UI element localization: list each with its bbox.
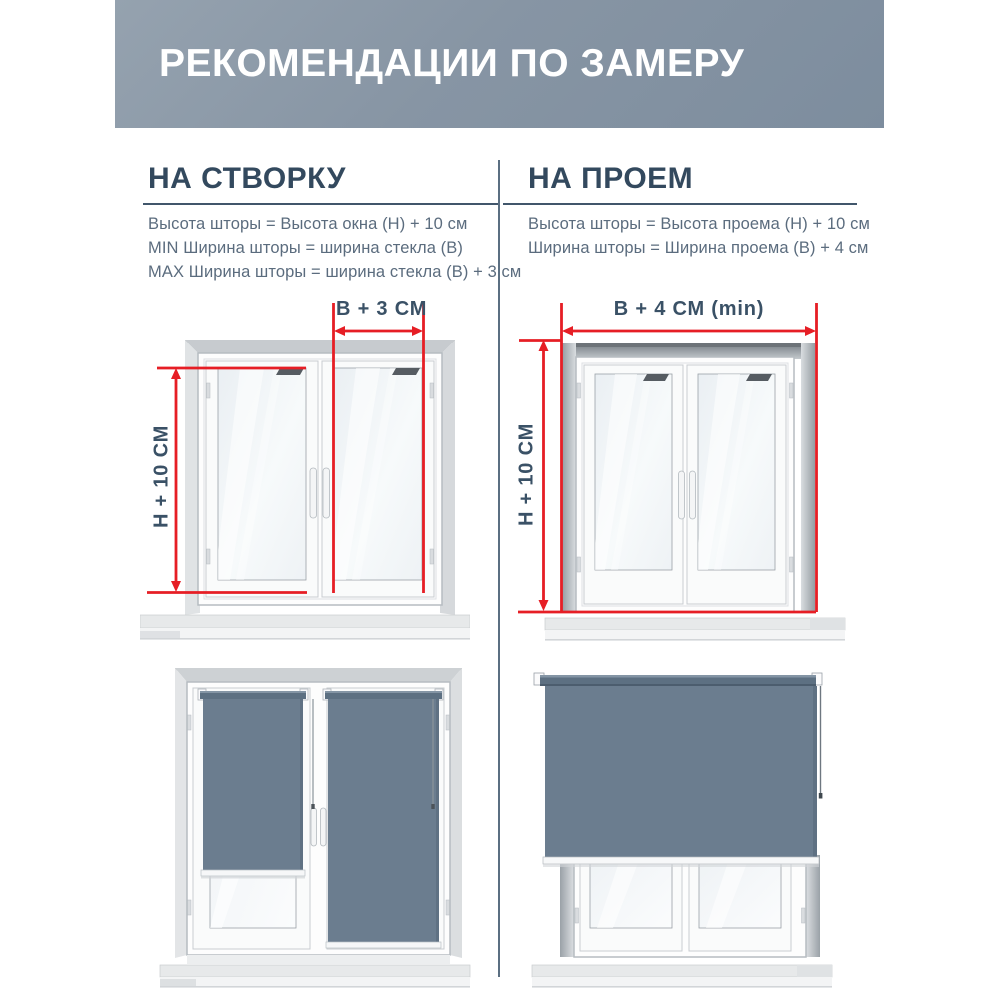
- left-width-label: В + 3 СМ: [336, 298, 422, 321]
- measurement-guide-page: РЕКОМЕНДАЦИИ ПО ЗАМЕРУ НА СТВОРКУ НА ПРО…: [0, 0, 1000, 1000]
- sash-blinds-illustration: [140, 660, 480, 990]
- left-rule-2: MIN Ширина шторы = ширина стекла (В): [148, 239, 463, 258]
- left-rule-1: Высота шторы = Высота окна (Н) + 10 см: [148, 215, 467, 234]
- left-heading-underline: [143, 203, 499, 205]
- sash-window-illustration: [140, 335, 470, 645]
- window-sill: [532, 965, 832, 988]
- roller-blind: [534, 673, 822, 867]
- opening-blind-illustration: [505, 660, 885, 990]
- window-sill: [160, 955, 470, 988]
- right-rule-1: Высота шторы = Высота проема (Н) + 10 см: [528, 215, 870, 234]
- page-title: РЕКОМЕНДАЦИИ ПО ЗАМЕРУ: [115, 42, 744, 86]
- left-rule-3: MAX Ширина шторы = ширина стекла (В) + 3…: [148, 263, 521, 282]
- window-sill: [140, 615, 470, 640]
- right-roller-blind: [323, 689, 443, 948]
- right-height-label: Н + 10 СМ: [516, 423, 539, 527]
- left-roller-blind: [198, 689, 315, 879]
- left-column-heading: НА СТВОРКУ: [148, 162, 346, 196]
- right-width-label: В + 4 СМ (min): [589, 298, 789, 321]
- left-height-label: Н + 10 СМ: [151, 425, 174, 529]
- column-divider: [498, 160, 500, 977]
- opening-window-illustration: [505, 335, 865, 655]
- window-sill: [545, 618, 845, 641]
- header-banner: РЕКОМЕНДАЦИИ ПО ЗАМЕРУ: [115, 0, 884, 128]
- right-heading-underline: [503, 203, 857, 205]
- right-rule-2: Ширина шторы = Ширина проема (В) + 4 см: [528, 239, 868, 258]
- right-column-heading: НА ПРОЕМ: [528, 162, 693, 196]
